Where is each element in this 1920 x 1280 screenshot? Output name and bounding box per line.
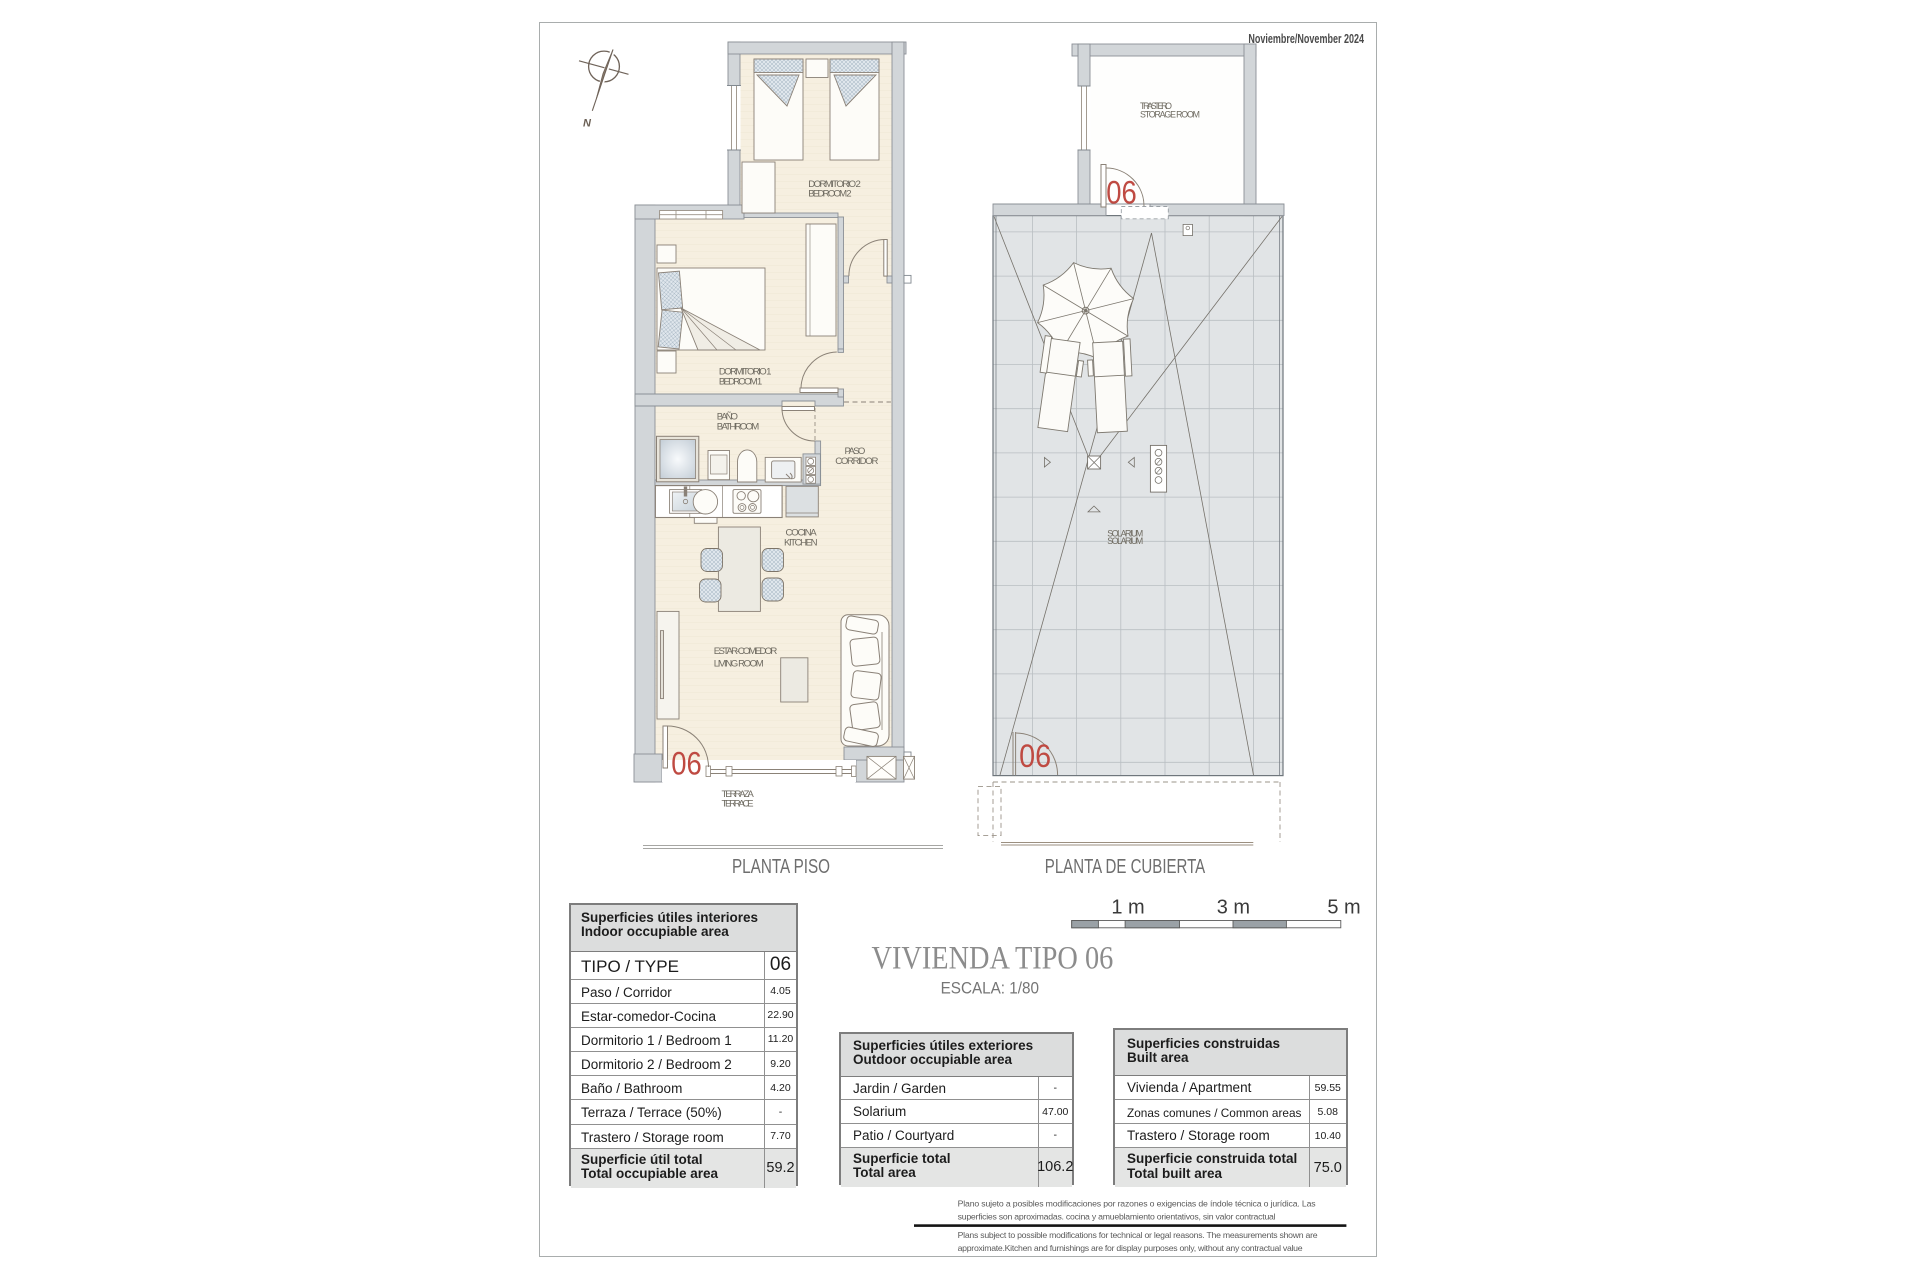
svg-text:superficies son aproximadas. c: superficies son aproximadas. cocina y am… [958, 1211, 1276, 1221]
svg-text:Plans subject to possible modi: Plans subject to possible modifications … [958, 1230, 1318, 1240]
svg-text:Plano sujeto a posibles modifi: Plano sujeto a posibles modificaciones p… [958, 1198, 1317, 1208]
svg-text:approximate.Kitchen and furnis: approximate.Kitchen and furnishings are … [958, 1243, 1303, 1253]
